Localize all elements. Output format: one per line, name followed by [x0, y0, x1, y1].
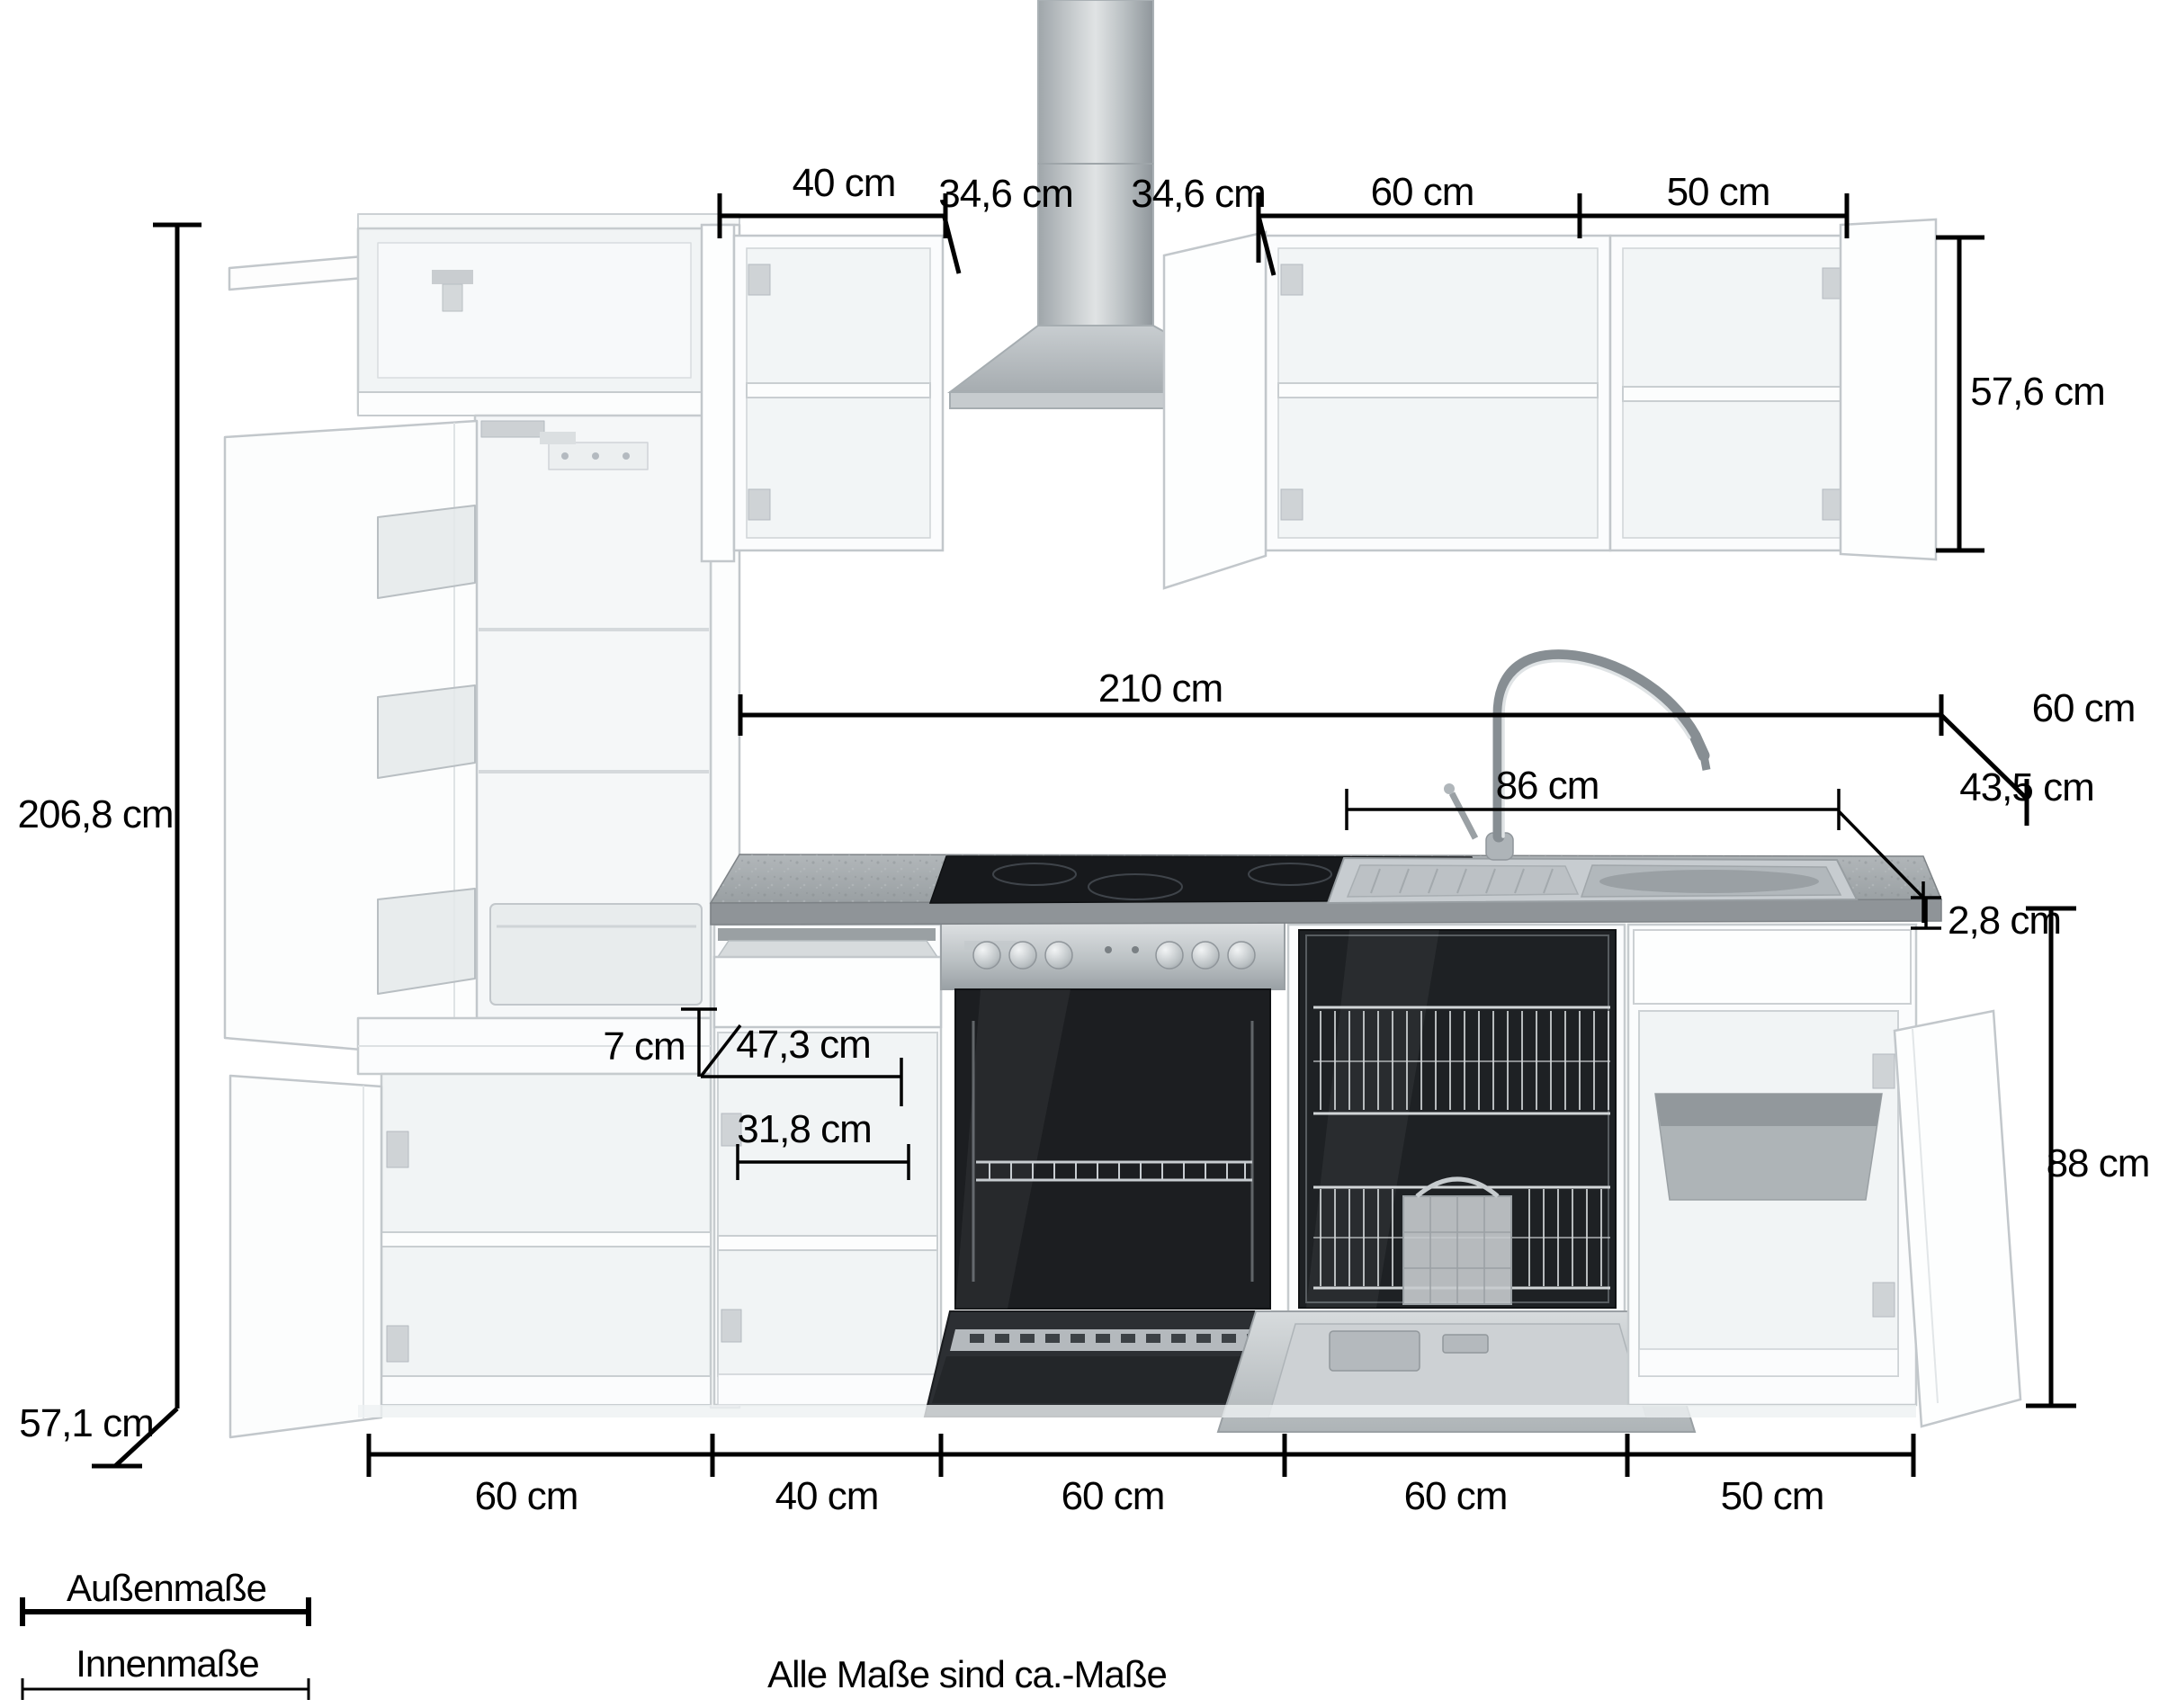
wall60-shelf [1278, 383, 1598, 398]
bottom-cabinet-shelf [381, 1232, 711, 1247]
wall40-shelf [747, 383, 930, 398]
label-depth-left: 34,6 cm [938, 172, 1073, 216]
faucet-tip [1704, 756, 1707, 770]
sink-base-cabinet [1628, 925, 2020, 1426]
top-cabinet-rail [358, 392, 711, 416]
bottom-door-open [230, 1076, 381, 1437]
hinge-icon [721, 1310, 741, 1342]
sink [1328, 858, 1857, 903]
wall-cabinet-50 [1610, 219, 1936, 559]
wall-cabinet-40 [702, 225, 943, 561]
dw-latch [1443, 1335, 1488, 1353]
hinge-icon [1873, 1283, 1895, 1317]
label-worktop-thickness: 2,8 cm [1948, 899, 2061, 943]
faucet [1444, 656, 1707, 860]
dw-dispenser [1330, 1331, 1420, 1371]
dw-cutlery-basket [1403, 1179, 1511, 1304]
wall50-shelf [1623, 387, 1841, 401]
base40-interior [718, 1033, 937, 1376]
sink-bowl-inner [1599, 870, 1819, 893]
label-base-width-2: 40 cm [775, 1474, 879, 1518]
drawer-box-open [718, 941, 937, 957]
faucet-handle-knob [1444, 783, 1455, 794]
sinkbase-floor [1639, 1349, 1898, 1376]
dishwasher [1218, 925, 1695, 1432]
note-all-measures: Alle Maße sind ca.-Maße [767, 1653, 1167, 1695]
door-bin [378, 685, 475, 778]
hinge-icon [1281, 489, 1303, 520]
floor-shadow [358, 1405, 1916, 1417]
label-worktop-depth: 60 cm [2032, 686, 2136, 730]
faucet-handle [1452, 793, 1475, 838]
base40-floor [718, 1374, 937, 1405]
label-base-depth: 57,1 cm [19, 1401, 154, 1445]
label-inner-width: 31,8 cm [737, 1107, 872, 1151]
base40-shelf [718, 1236, 937, 1250]
flap-hinge-icon [432, 270, 473, 284]
flap-hinge-arm-icon [443, 284, 462, 311]
label-depth-right: 34,6 cm [1131, 172, 1266, 216]
worktop-front-edge [711, 899, 1941, 925]
dim-diagonal-depth-left [944, 214, 959, 273]
fridge-control-icon [592, 452, 599, 460]
hinge-icon [387, 1131, 408, 1167]
sinkbase-false-front [1634, 930, 1911, 1004]
top-back-rail [358, 214, 739, 228]
legend: Außenmaße Innenmaße [22, 1567, 309, 1700]
fridge-control-icon [623, 452, 630, 460]
tall-fridge-unit [225, 214, 739, 1437]
label-wall40: 40 cm [793, 161, 896, 205]
fridge-hinge-arm [540, 432, 576, 444]
drawer-gap [718, 928, 936, 941]
label-wall60: 60 cm [1371, 170, 1474, 214]
wall40-door-open [702, 225, 734, 561]
diagram-canvas: 40 cm 34,6 cm 34,6 cm 60 cm 50 cm 57,6 c… [0, 0, 2159, 1708]
crisper-drawer [490, 904, 702, 1005]
label-base-width-4: 60 cm [1404, 1474, 1508, 1518]
label-wall50: 50 cm [1667, 170, 1770, 214]
base-cabinet-40 [714, 925, 941, 1405]
label-total-height: 206,8 cm [18, 792, 174, 836]
door-bin [378, 505, 475, 598]
wall50-door-open [1841, 219, 1936, 559]
fridge-control-icon [561, 452, 569, 460]
under-sink-shadow [1655, 1094, 1882, 1126]
label-base-width-1: 60 cm [475, 1474, 578, 1518]
label-drawer-height: 7 cm [603, 1024, 685, 1069]
hinge-icon [387, 1326, 408, 1362]
hinge-icon [748, 264, 770, 295]
kitchen-dimension-diagram: 40 cm 34,6 cm 34,6 cm 60 cm 50 cm 57,6 c… [0, 0, 2159, 1708]
hinge-icon [1873, 1054, 1895, 1088]
fridge-hinge [481, 421, 544, 437]
label-base-width-3: 60 cm [1062, 1474, 1165, 1518]
wall60-door-open [1164, 232, 1266, 588]
oven [925, 921, 1301, 1417]
label-base-height: 88 cm [2047, 1141, 2150, 1185]
hinge-icon [748, 489, 770, 520]
legend-inner-label: Innenmaße [76, 1642, 258, 1685]
label-sink-depth: 43,5 cm [1959, 765, 2094, 809]
bottom-cabinet-floor [381, 1376, 711, 1405]
label-wall-height: 57,6 cm [1970, 370, 2105, 414]
drawer-front [714, 957, 941, 1027]
wall-cabinet-60 [1164, 232, 1610, 588]
door-bin [378, 889, 475, 994]
legend-outer-label: Außenmaße [67, 1567, 266, 1609]
label-drawer-depth: 47,3 cm [736, 1023, 871, 1067]
label-sink-length: 86 cm [1496, 764, 1599, 808]
label-base-width-5: 50 cm [1721, 1474, 1824, 1518]
top-cabinet-backwall [378, 243, 691, 378]
hinge-icon [1281, 264, 1303, 295]
label-worktop-length: 210 cm [1098, 666, 1223, 711]
